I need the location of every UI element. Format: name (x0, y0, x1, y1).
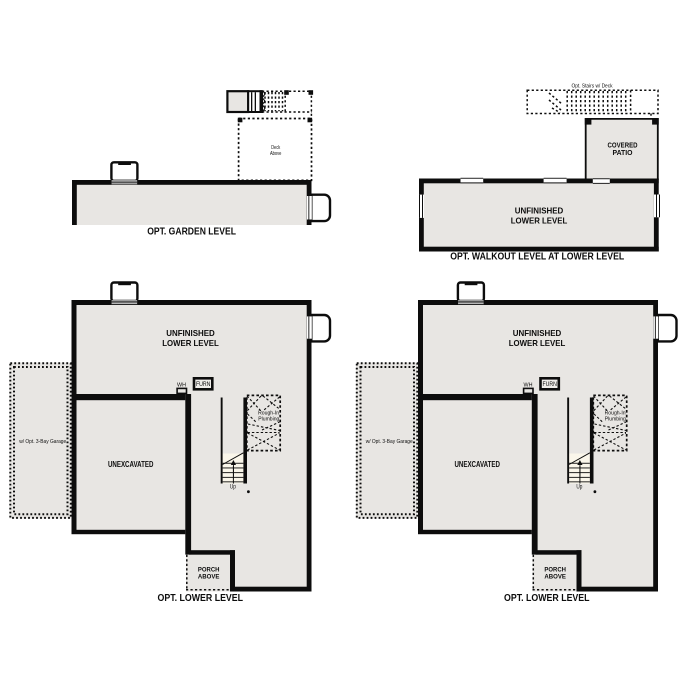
svg-text:Up: Up (576, 484, 583, 490)
svg-text:UNEXCAVATED: UNEXCAVATED (108, 460, 154, 469)
svg-text:FURN: FURN (542, 381, 557, 388)
svg-text:UNFINISHED: UNFINISHED (513, 329, 562, 338)
svg-text:Above: Above (270, 151, 282, 157)
svg-text:PATIO: PATIO (613, 148, 633, 157)
svg-text:PORCH: PORCH (198, 568, 220, 574)
svg-text:Plumbing: Plumbing (258, 417, 279, 423)
svg-text:PORCH: PORCH (544, 568, 566, 574)
svg-text:OPT. GARDEN LEVEL: OPT. GARDEN LEVEL (147, 227, 236, 238)
svg-text:UNEXCAVATED: UNEXCAVATED (454, 460, 500, 469)
svg-text:Up: Up (230, 484, 237, 490)
svg-text:Rough-In: Rough-In (605, 411, 626, 417)
svg-text:OPT. LOWER LEVEL: OPT. LOWER LEVEL (504, 593, 590, 604)
svg-text:Plumbing: Plumbing (605, 417, 626, 423)
svg-text:ABOVE: ABOVE (198, 575, 220, 581)
svg-text:UNFINISHED: UNFINISHED (515, 207, 564, 216)
svg-text:OPT. LOWER LEVEL: OPT. LOWER LEVEL (158, 593, 244, 604)
svg-text:w/ Opt. 3-Bay Garage: w/ Opt. 3-Bay Garage (18, 439, 66, 445)
svg-text:FURN: FURN (196, 381, 211, 388)
svg-text:LOWER LEVEL: LOWER LEVEL (162, 339, 219, 348)
svg-text:w/ Opt. 3-Bay Garage: w/ Opt. 3-Bay Garage (365, 439, 413, 445)
svg-text:ABOVE: ABOVE (544, 575, 566, 581)
svg-text:LOWER LEVEL: LOWER LEVEL (511, 216, 568, 225)
svg-text:UNFINISHED: UNFINISHED (166, 329, 215, 338)
svg-text:LOWER LEVEL: LOWER LEVEL (509, 339, 566, 348)
svg-text:OPT. WALKOUT LEVEL AT LOWER LE: OPT. WALKOUT LEVEL AT LOWER LEVEL (450, 252, 624, 263)
svg-text:Opt. Stairs w/ Deck: Opt. Stairs w/ Deck (572, 84, 613, 90)
svg-text:Rough-In: Rough-In (258, 411, 279, 417)
